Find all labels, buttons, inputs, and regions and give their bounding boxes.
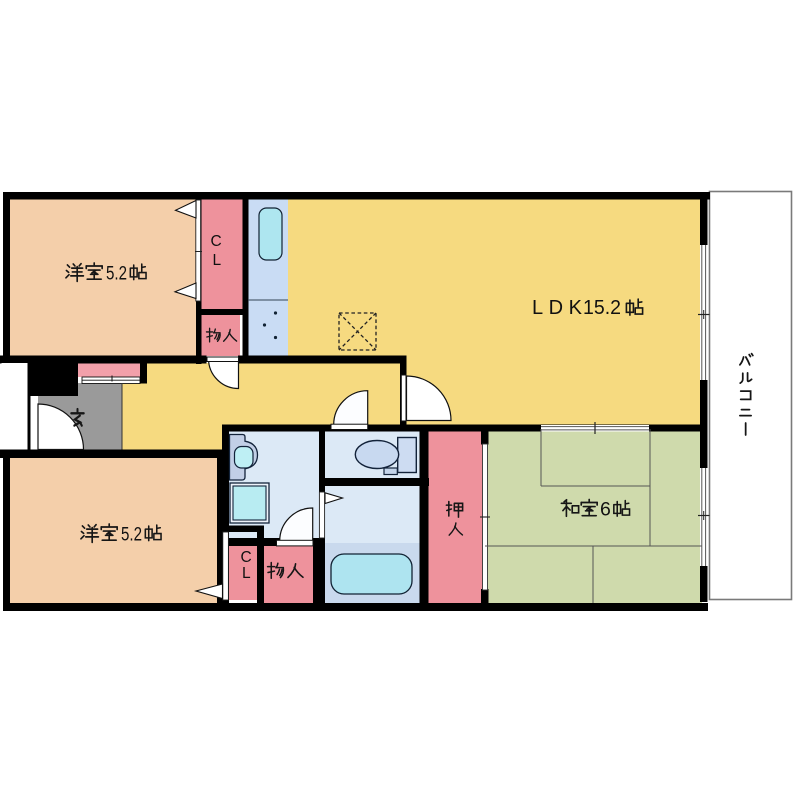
svg-text:L: L	[242, 565, 251, 582]
svg-text:LDK: LDK	[532, 297, 587, 319]
svg-text:5.2: 5.2	[121, 524, 142, 546]
svg-text:6: 6	[600, 499, 611, 521]
svg-text:C: C	[211, 233, 222, 250]
svg-text:L: L	[213, 252, 222, 269]
svg-text:15.2: 15.2	[583, 297, 621, 319]
svg-text:C: C	[241, 549, 252, 566]
svg-text:5.2: 5.2	[106, 263, 127, 285]
